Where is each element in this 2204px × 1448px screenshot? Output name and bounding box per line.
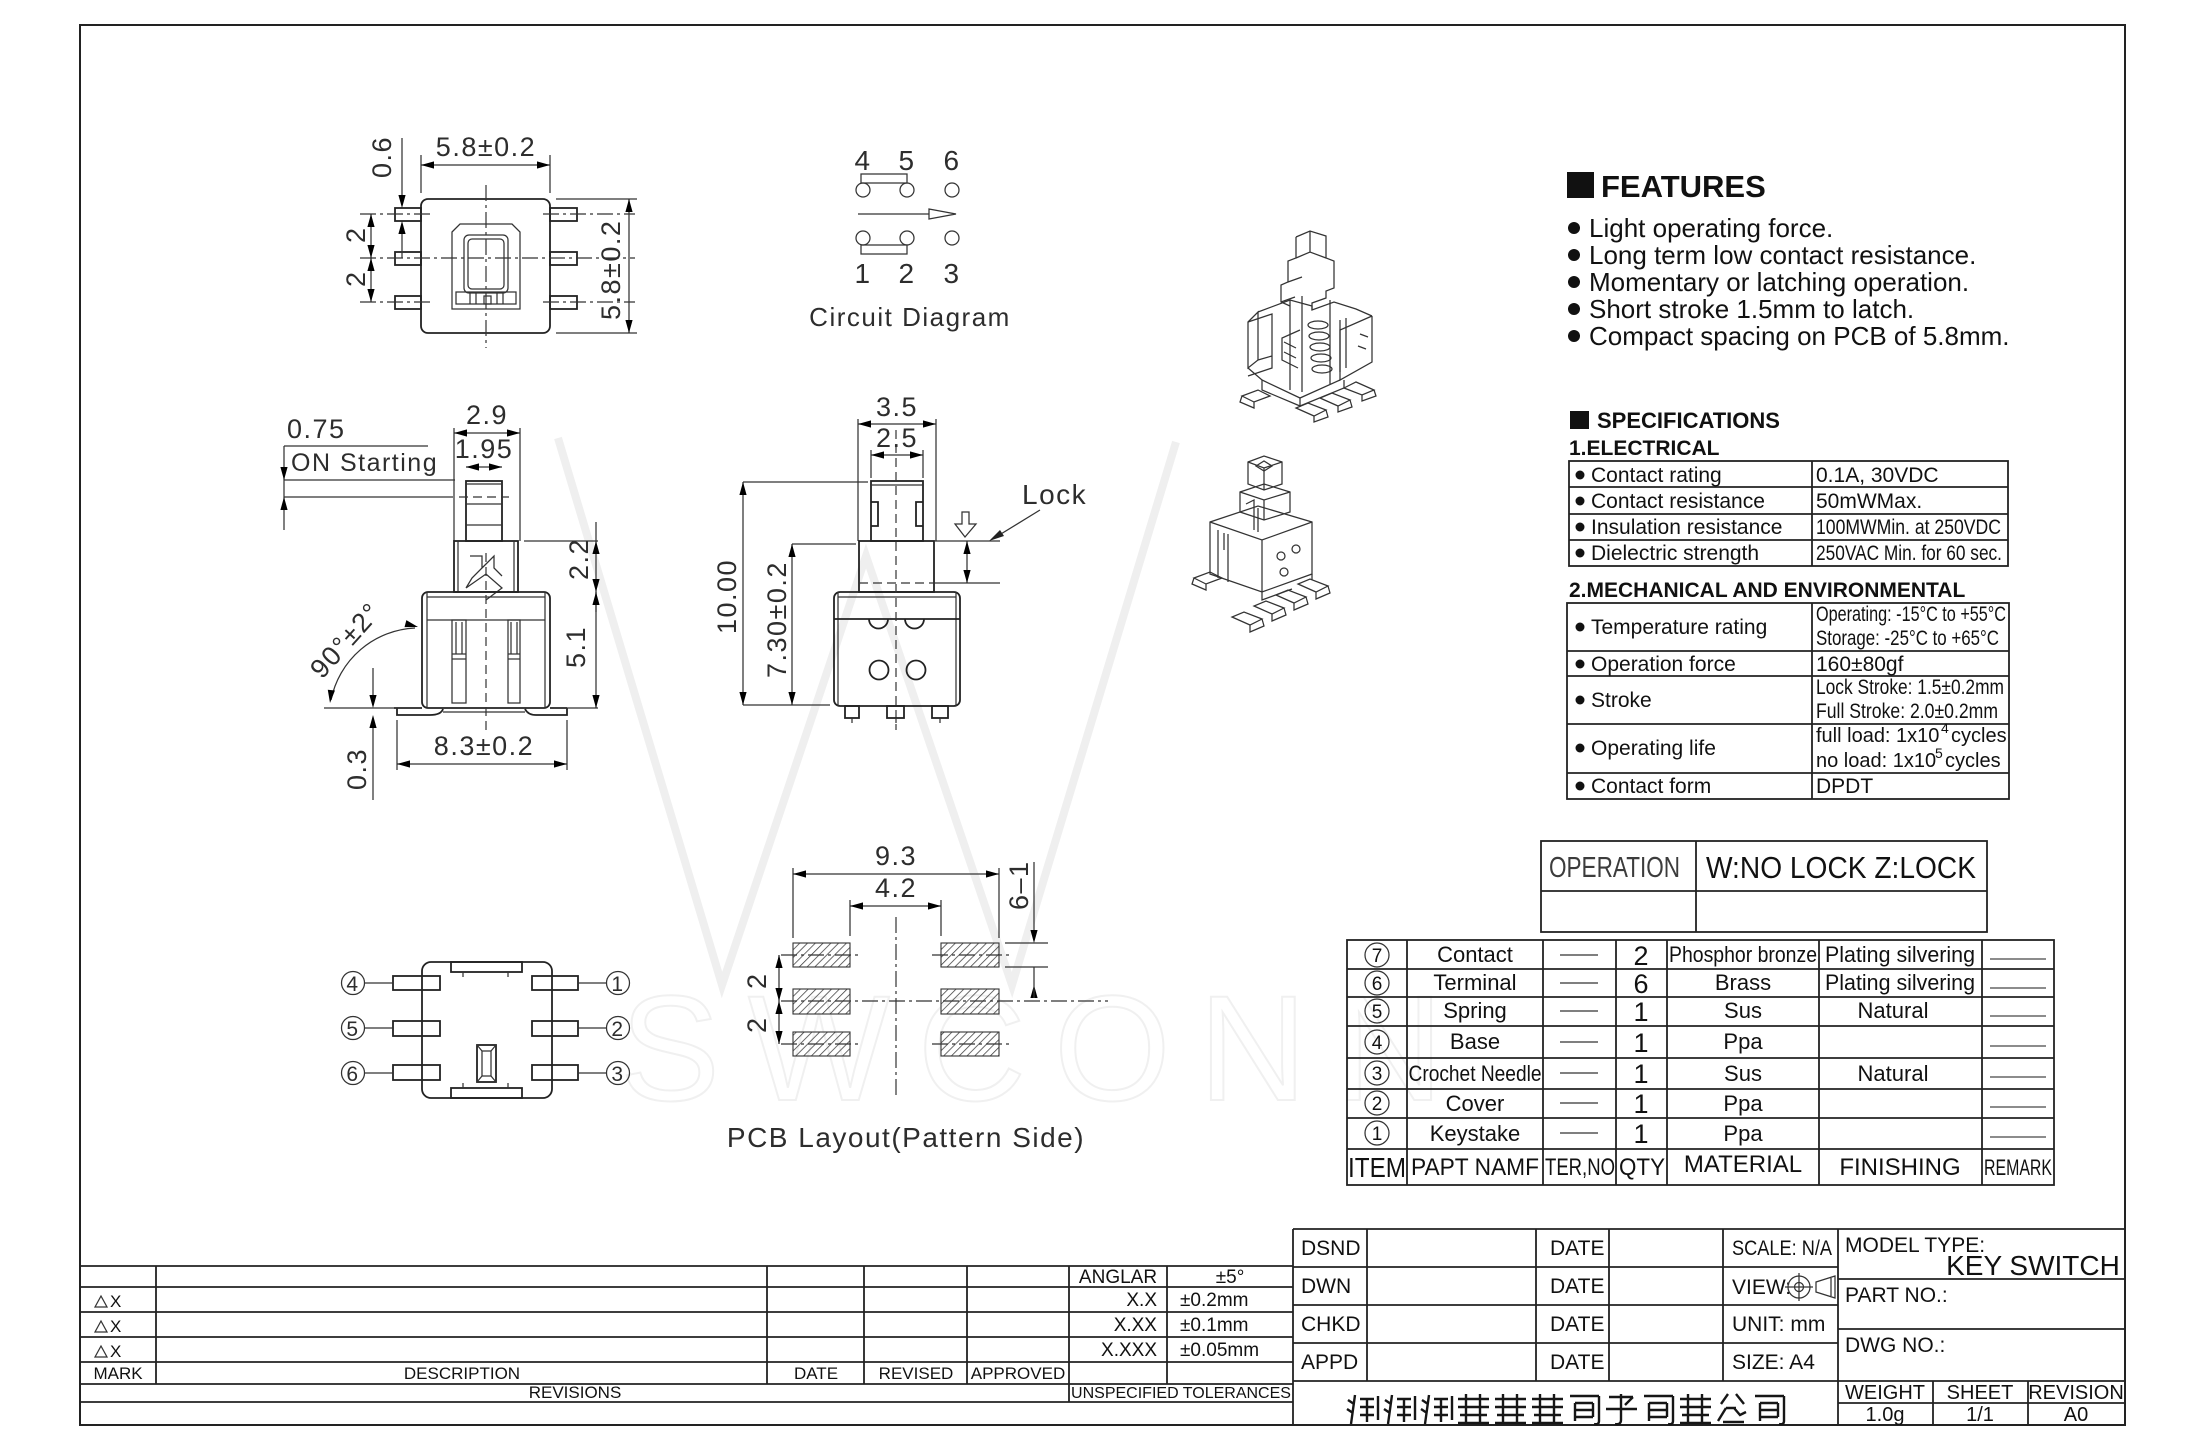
svg-text:Stroke: Stroke: [1591, 689, 1652, 712]
svg-text:Storage: -25°C to +65°C: Storage: -25°C to +65°C: [1816, 627, 1999, 650]
svg-text:3: 3: [943, 258, 960, 289]
svg-text:Sus: Sus: [1724, 1061, 1762, 1086]
svg-text:5.8±0.2: 5.8±0.2: [436, 132, 536, 162]
svg-text:DWN: DWN: [1301, 1275, 1351, 1298]
svg-text:Light operating force.: Light operating force.: [1589, 213, 1833, 243]
svg-text:OPERATION: OPERATION: [1549, 852, 1680, 884]
svg-text:Ppa: Ppa: [1723, 1121, 1763, 1146]
svg-text:1: 1: [854, 258, 871, 289]
svg-text:Natural: Natural: [1858, 998, 1929, 1023]
svg-text:Long term low contact resistan: Long term low contact resistance.: [1589, 240, 1976, 270]
svg-text:5: 5: [898, 145, 915, 176]
svg-text:DSND: DSND: [1301, 1237, 1361, 1260]
svg-text:X.XXX: X.XXX: [1101, 1340, 1157, 1361]
svg-text:DATE: DATE: [794, 1364, 838, 1383]
svg-text:1: 1: [611, 973, 624, 996]
svg-text:SCALE: N/A: SCALE: N/A: [1732, 1237, 1832, 1260]
svg-text:ANGLAR: ANGLAR: [1079, 1267, 1157, 1288]
svg-text:5: 5: [1372, 1002, 1383, 1023]
svg-text:CHKD: CHKD: [1301, 1313, 1361, 1336]
svg-text:QTY: QTY: [1619, 1154, 1665, 1181]
svg-text:2.2: 2.2: [564, 538, 594, 580]
svg-text:Operation force: Operation force: [1591, 653, 1736, 676]
svg-text:DATE: DATE: [1550, 1237, 1604, 1260]
svg-text:2.5: 2.5: [876, 423, 918, 453]
svg-text:SPECIFICATIONS: SPECIFICATIONS: [1597, 408, 1780, 433]
svg-text:Ppa: Ppa: [1723, 1091, 1763, 1116]
svg-text:SIZE: A4: SIZE: A4: [1732, 1351, 1815, 1374]
svg-text:Full Stroke: 2.0±0.2mm: Full Stroke: 2.0±0.2mm: [1816, 700, 1998, 723]
svg-text:Cover: Cover: [1446, 1091, 1505, 1116]
svg-text:Phosphor bronze: Phosphor bronze: [1669, 942, 1817, 967]
svg-text:SHEET: SHEET: [1947, 1382, 2014, 1404]
svg-text:1: 1: [1633, 1119, 1648, 1149]
svg-text:2: 2: [742, 972, 772, 989]
svg-text:DWG NO.:: DWG NO.:: [1845, 1334, 1945, 1357]
svg-text:DATE: DATE: [1550, 1351, 1604, 1374]
svg-text:10.00: 10.00: [712, 559, 742, 634]
svg-text:Operating: -15°C to +55°C: Operating: -15°C to +55°C: [1816, 603, 2006, 626]
svg-text:Spring: Spring: [1443, 998, 1507, 1023]
svg-text:Circuit Diagram: Circuit Diagram: [809, 302, 1011, 332]
svg-text:Contact rating: Contact rating: [1591, 464, 1722, 487]
svg-text:50mWMax.: 50mWMax.: [1816, 490, 1922, 513]
svg-text:UNIT: mm: UNIT: mm: [1732, 1313, 1825, 1336]
svg-text:Natural: Natural: [1858, 1061, 1929, 1086]
svg-text:2: 2: [898, 258, 915, 289]
svg-text:1: 1: [1633, 1028, 1648, 1058]
svg-text:2: 2: [341, 270, 371, 287]
svg-text:6: 6: [1633, 969, 1648, 999]
svg-text:MATERIAL: MATERIAL: [1684, 1151, 1802, 1178]
svg-text:DATE: DATE: [1550, 1313, 1604, 1336]
svg-text:Lock Stroke: 1.5±0.2mm: Lock Stroke: 1.5±0.2mm: [1816, 676, 2004, 699]
svg-text:DPDT: DPDT: [1816, 775, 1873, 798]
svg-text:0.75: 0.75: [287, 414, 346, 444]
svg-text:X: X: [110, 1317, 121, 1336]
svg-text:Lock: Lock: [1022, 479, 1087, 510]
svg-text:Contact resistance: Contact resistance: [1591, 490, 1765, 513]
svg-text:4: 4: [346, 973, 359, 996]
svg-text:2.MECHANICAL AND ENVIRONMENTAL: 2.MECHANICAL AND ENVIRONMENTAL: [1569, 579, 1965, 602]
svg-text:Terminal: Terminal: [1433, 970, 1516, 995]
svg-text:9.3: 9.3: [875, 841, 917, 871]
svg-text:FEATURES: FEATURES: [1601, 169, 1766, 204]
svg-text:PCB Layout(Pattern Side): PCB Layout(Pattern Side): [727, 1122, 1085, 1153]
svg-text:APPROVED: APPROVED: [971, 1364, 1065, 1383]
svg-text:DATE: DATE: [1550, 1275, 1604, 1298]
svg-text:7: 7: [1372, 946, 1383, 967]
svg-text:2: 2: [611, 1018, 624, 1041]
svg-text:full load: 1x10: full load: 1x10: [1816, 725, 1939, 747]
svg-text:7.30±0.2: 7.30±0.2: [762, 561, 792, 678]
svg-text:2.9: 2.9: [466, 400, 508, 430]
svg-text:Base: Base: [1450, 1029, 1500, 1054]
svg-text:X: X: [110, 1342, 121, 1361]
svg-text:250VAC Min. for 60 sec.: 250VAC Min. for 60 sec.: [1816, 542, 2002, 565]
svg-text:A0: A0: [2064, 1404, 2088, 1426]
svg-text:1.ELECTRICAL: 1.ELECTRICAL: [1569, 437, 1720, 460]
svg-text:5.8±0.2: 5.8±0.2: [596, 220, 626, 320]
svg-text:REMARK: REMARK: [1984, 1155, 2052, 1180]
svg-text:2: 2: [341, 226, 371, 243]
svg-text:Plating silvering: Plating silvering: [1825, 970, 1975, 995]
svg-text:ITEM: ITEM: [1348, 1152, 1406, 1183]
svg-text:1/1: 1/1: [1966, 1404, 1994, 1426]
svg-text:2: 2: [1372, 1094, 1383, 1115]
svg-text:±0.1mm: ±0.1mm: [1180, 1315, 1249, 1336]
svg-text:Contact form: Contact form: [1591, 775, 1711, 798]
svg-text:WEIGHT: WEIGHT: [1845, 1382, 1925, 1404]
svg-text:Contact: Contact: [1437, 942, 1513, 967]
svg-text:6: 6: [1372, 974, 1383, 995]
svg-text:6: 6: [346, 1063, 359, 1086]
svg-text:5: 5: [1935, 745, 1943, 761]
svg-text:Dielectric strength: Dielectric strength: [1591, 542, 1759, 565]
svg-text:1: 1: [1633, 1059, 1648, 1089]
svg-text:Ppa: Ppa: [1723, 1029, 1763, 1054]
svg-text:REVISION: REVISION: [2028, 1382, 2124, 1404]
svg-text:Momentary or latching operatio: Momentary or latching operation.: [1589, 267, 1969, 297]
svg-text:W:NO LOCK Z:LOCK: W:NO LOCK Z:LOCK: [1706, 850, 1976, 885]
svg-text:no load: 1x10: no load: 1x10: [1816, 750, 1936, 772]
svg-text:8.3±0.2: 8.3±0.2: [434, 731, 534, 761]
svg-text:Compact spacing on PCB of 5.8m: Compact spacing on PCB of 5.8mm.: [1589, 321, 2010, 351]
svg-text:1: 1: [1633, 1089, 1648, 1119]
svg-text:X.XX: X.XX: [1114, 1315, 1158, 1336]
svg-text:Brass: Brass: [1715, 970, 1771, 995]
svg-text:APPD: APPD: [1301, 1351, 1358, 1374]
svg-text:±0.2mm: ±0.2mm: [1180, 1290, 1249, 1311]
svg-text:Sus: Sus: [1724, 998, 1762, 1023]
svg-text:3: 3: [611, 1063, 624, 1086]
svg-text:1.0g: 1.0g: [1866, 1404, 1905, 1426]
svg-text:REVISIONS: REVISIONS: [529, 1383, 622, 1402]
svg-text:KEY SWITCH: KEY SWITCH: [1946, 1250, 2120, 1281]
svg-text:cycles: cycles: [1951, 725, 2007, 747]
svg-text:5.1: 5.1: [561, 626, 591, 668]
svg-text:1: 1: [1633, 997, 1648, 1027]
svg-text:VIEW:: VIEW:: [1732, 1276, 1791, 1299]
svg-text:Keystake: Keystake: [1430, 1121, 1521, 1146]
svg-text:4: 4: [854, 145, 871, 176]
svg-text:4: 4: [1941, 720, 1949, 736]
svg-text:ON Starting: ON Starting: [291, 449, 438, 477]
svg-text:PART NO.:: PART NO.:: [1845, 1284, 1948, 1307]
svg-text:3.5: 3.5: [876, 392, 918, 422]
svg-text:Insulation resistance: Insulation resistance: [1591, 516, 1782, 539]
svg-text:PAPT NAMF: PAPT NAMF: [1411, 1154, 1539, 1181]
svg-text:4: 4: [1372, 1033, 1383, 1054]
svg-text:4.2: 4.2: [875, 873, 917, 903]
svg-text:TER,NO: TER,NO: [1545, 1154, 1615, 1181]
svg-text:2: 2: [742, 1016, 772, 1033]
svg-text:Operating life: Operating life: [1591, 737, 1716, 760]
svg-text:2: 2: [1633, 941, 1648, 971]
svg-text:5: 5: [346, 1018, 359, 1041]
svg-text:100MWMin. at 250VDC: 100MWMin. at 250VDC: [1816, 516, 2001, 539]
svg-text:6: 6: [943, 145, 960, 176]
svg-text:Temperature rating: Temperature rating: [1591, 616, 1767, 639]
svg-text:3: 3: [1372, 1064, 1383, 1085]
svg-text:1.95: 1.95: [455, 434, 514, 464]
svg-text:X.X: X.X: [1126, 1290, 1157, 1311]
svg-text:0.3: 0.3: [342, 748, 372, 790]
svg-text:0.6: 0.6: [367, 136, 397, 178]
svg-text:UNSPECIFIED TOLERANCES: UNSPECIFIED TOLERANCES: [1071, 1385, 1291, 1402]
svg-text:DESCRIPTION: DESCRIPTION: [404, 1364, 520, 1383]
svg-text:cycles: cycles: [1945, 750, 2001, 772]
svg-text:6–1: 6–1: [1004, 860, 1034, 910]
svg-text:±0.05mm: ±0.05mm: [1180, 1340, 1259, 1361]
svg-text:FINISHING: FINISHING: [1839, 1154, 1960, 1181]
svg-text:Short stroke 1.5mm to latch.: Short stroke 1.5mm to latch.: [1589, 294, 1914, 324]
svg-text:Plating silvering: Plating silvering: [1825, 942, 1975, 967]
svg-text:±5°: ±5°: [1216, 1267, 1245, 1288]
svg-text:REVISED: REVISED: [879, 1364, 954, 1383]
svg-text:MARK: MARK: [93, 1364, 143, 1383]
svg-text:Crochet Needle: Crochet Needle: [1409, 1061, 1542, 1086]
svg-text:1: 1: [1372, 1124, 1383, 1145]
svg-text:160±80gf: 160±80gf: [1816, 653, 1904, 676]
svg-text:0.1A, 30VDC: 0.1A, 30VDC: [1816, 464, 1939, 487]
svg-text:X: X: [110, 1292, 121, 1311]
